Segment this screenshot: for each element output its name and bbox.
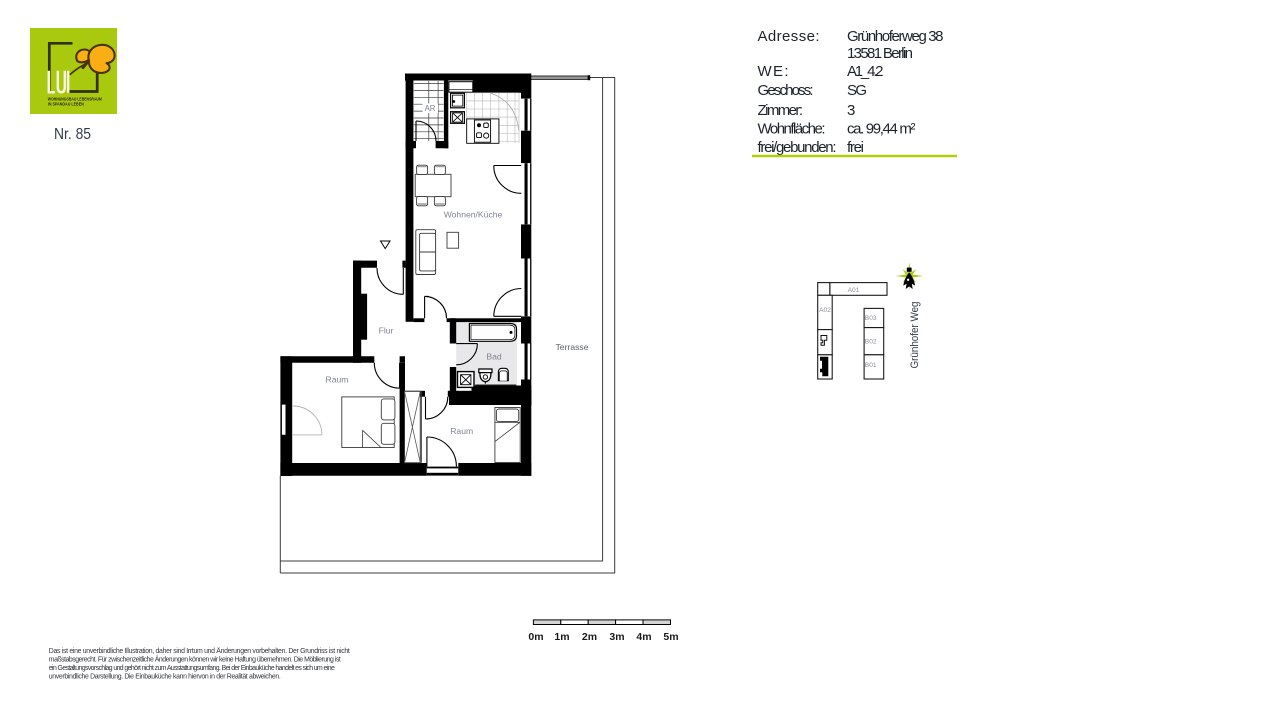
svg-text:3: 3: [847, 102, 855, 119]
svg-text:1m: 1m: [554, 631, 569, 643]
svg-text:Zimmer:: Zimmer:: [758, 102, 804, 119]
svg-text:frei/gebunden:: frei/gebunden:: [758, 139, 837, 156]
svg-text:IN SPANDAU LEBEN: IN SPANDAU LEBEN: [48, 101, 84, 106]
svg-text:Grünhoferweg 38: Grünhoferweg 38: [847, 28, 944, 45]
svg-text:Adresse:: Adresse:: [758, 28, 820, 45]
svg-text:A01: A01: [848, 287, 860, 294]
svg-text:ca. 99,44 m²: ca. 99,44 m²: [847, 121, 916, 138]
svg-text:Wohnen/Küche: Wohnen/Küche: [444, 210, 503, 220]
svg-text:A1_4.2: A1_4.2: [847, 63, 884, 80]
svg-text:Raum: Raum: [450, 426, 473, 436]
svg-text:B02: B02: [865, 339, 877, 346]
svg-text:B01: B01: [865, 362, 877, 369]
svg-text:B03: B03: [865, 315, 877, 322]
svg-text:unverbindliche Darstellung. Di: unverbindliche Darstellung. Die Einbaukü…: [49, 674, 281, 681]
svg-text:3m: 3m: [609, 631, 624, 643]
svg-text:Geschoss:: Geschoss:: [758, 82, 814, 99]
svg-text:AR: AR: [425, 104, 436, 113]
svg-text:A02: A02: [819, 307, 831, 314]
svg-text:Bad: Bad: [486, 352, 502, 362]
svg-text:Wohnfläche:: Wohnfläche:: [758, 121, 826, 138]
svg-text:Nr. 85: Nr. 85: [54, 126, 91, 143]
svg-text:2m: 2m: [582, 631, 597, 643]
svg-text:13581 Berlin: 13581 Berlin: [847, 45, 913, 62]
svg-text:Flur: Flur: [379, 326, 394, 336]
svg-text:0m: 0m: [528, 631, 543, 643]
svg-text:Raum: Raum: [326, 375, 349, 385]
svg-text:4m: 4m: [636, 631, 651, 643]
svg-text:Terrasse: Terrasse: [556, 342, 589, 352]
svg-text:Grünhofer Weg: Grünhofer Weg: [909, 302, 921, 369]
svg-text:WE:: WE:: [758, 63, 789, 80]
svg-text:5m: 5m: [663, 631, 678, 643]
svg-text:Das ist eine unverbindliche Il: Das ist eine unverbindliche Illustration…: [49, 647, 350, 655]
svg-text:SG: SG: [847, 82, 867, 99]
svg-text:ein Gestaltungsvorschlag und g: ein Gestaltungsvorschlag und gehört nich…: [49, 665, 335, 672]
svg-text:frei: frei: [847, 139, 864, 156]
svg-text:maßstabsgerecht. Für zwischenz: maßstabsgerecht. Für zwischenzeitliche Ä…: [49, 656, 341, 664]
